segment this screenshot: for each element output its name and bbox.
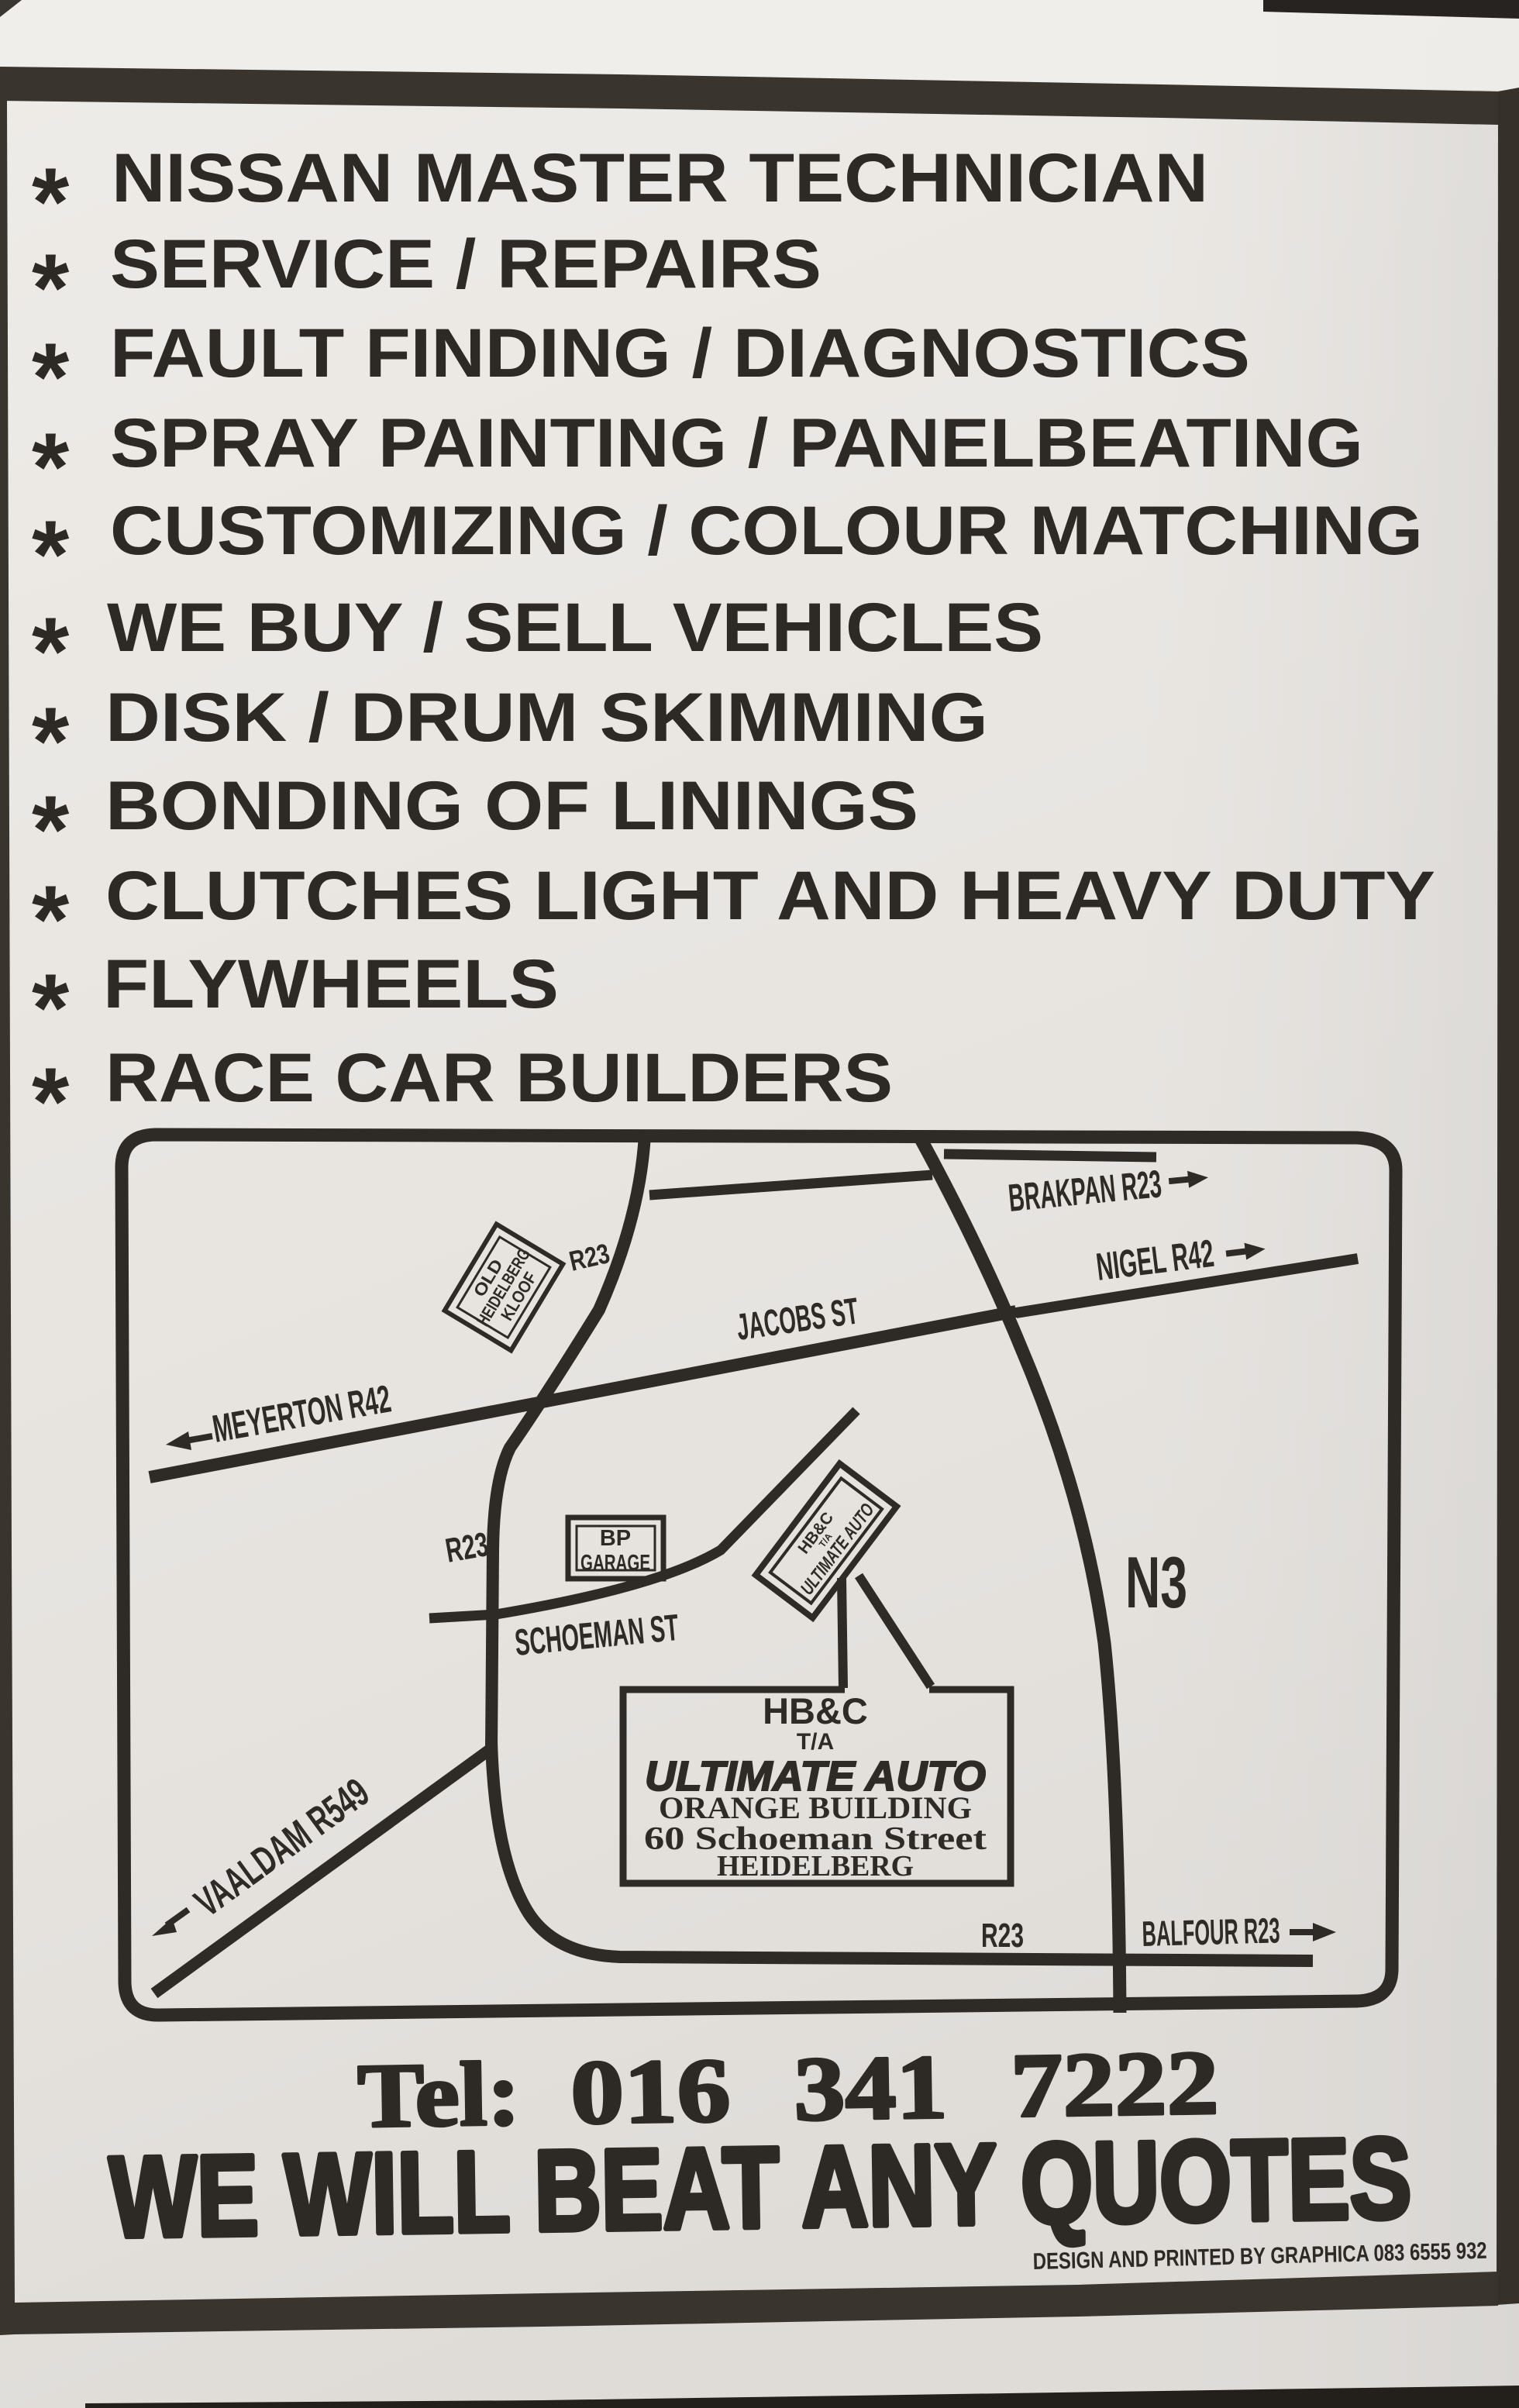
svg-text:ORANGE BUILDING: ORANGE BUILDING — [659, 1790, 972, 1825]
svg-text:HB&C: HB&C — [763, 1690, 868, 1731]
svg-text:HEIDELBERG: HEIDELBERG — [717, 1850, 914, 1883]
svg-text:SPRAY PAINTING / PANELBEATING: SPRAY PAINTING / PANELBEATING — [110, 404, 1363, 481]
svg-text:WE WILL BEAT ANY QUOTES: WE WILL BEAT ANY QUOTES — [108, 2114, 1412, 2262]
svg-text:FAULT FINDING / DIAGNOSTICS: FAULT FINDING / DIAGNOSTICS — [110, 314, 1250, 391]
svg-text:DISK / DRUM SKIMMING: DISK / DRUM SKIMMING — [105, 678, 988, 756]
svg-text:WE BUY / SELL VEHICLES: WE BUY / SELL VEHICLES — [107, 588, 1043, 666]
svg-text:SERVICE / REPAIRS: SERVICE / REPAIRS — [110, 225, 821, 302]
svg-text:*: * — [32, 501, 70, 608]
svg-text:*: * — [32, 1049, 70, 1156]
svg-text:CLUTCHES LIGHT AND HEAVY DUTY: CLUTCHES LIGHT AND HEAVY DUTY — [105, 856, 1435, 934]
svg-text:T/A: T/A — [797, 1729, 834, 1755]
svg-text:*: * — [32, 955, 70, 1062]
svg-text:BP: BP — [600, 1526, 631, 1551]
svg-text:N3: N3 — [1125, 1542, 1187, 1623]
svg-text:R23: R23 — [443, 1525, 491, 1570]
svg-text:R23: R23 — [981, 1917, 1024, 1955]
svg-text:GARAGE: GARAGE — [580, 1551, 650, 1576]
svg-text:RACE CAR BUILDERS: RACE CAR BUILDERS — [105, 1039, 893, 1116]
svg-text:BONDING OF LININGS: BONDING OF LININGS — [105, 766, 918, 844]
svg-text:NISSAN MASTER TECHNICIAN: NISSAN MASTER TECHNICIAN — [112, 139, 1208, 216]
svg-text:CUSTOMIZING / COLOUR MATCHING: CUSTOMIZING / COLOUR MATCHING — [110, 491, 1423, 569]
svg-text:BALFOUR R23: BALFOUR R23 — [1142, 1910, 1280, 1954]
svg-text:FLYWHEELS: FLYWHEELS — [103, 945, 559, 1022]
